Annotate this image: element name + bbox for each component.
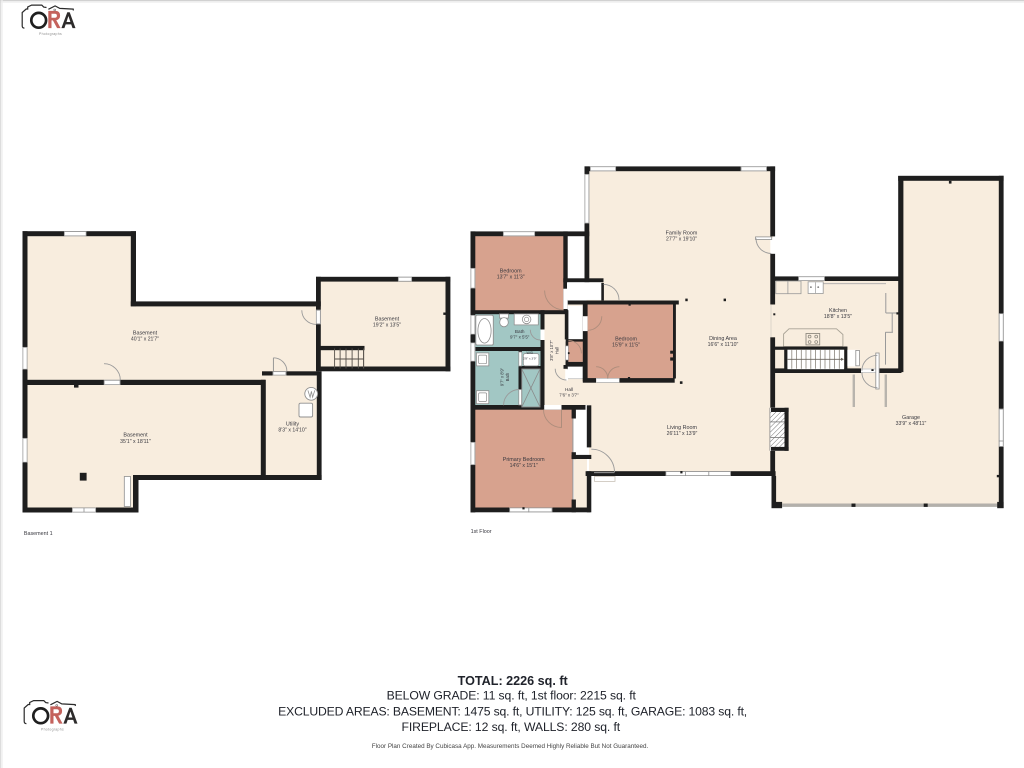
svg-text:FIREPLACE: 12 sq. ft, WALLS: 2: FIREPLACE: 12 sq. ft, WALLS: 280 sq. ft — [402, 720, 621, 734]
svg-text:Basement: Basement — [375, 316, 400, 322]
svg-text:18'8" x 13'5": 18'8" x 13'5" — [824, 314, 852, 320]
svg-text:Utility: Utility — [286, 422, 299, 428]
svg-text:Kitchen: Kitchen — [829, 308, 847, 314]
svg-text:9'7" x 8'9": 9'7" x 8'9" — [500, 367, 505, 386]
svg-text:Family Room: Family Room — [666, 231, 698, 237]
svg-text:9'7" x 5'5": 9'7" x 5'5" — [510, 334, 530, 339]
svg-text:Basement 1: Basement 1 — [24, 531, 53, 537]
svg-text:19'2" x 13'5": 19'2" x 13'5" — [373, 322, 401, 328]
svg-text:Floor Plan Created By Cubicasa: Floor Plan Created By Cubicasa App. Meas… — [372, 743, 649, 750]
svg-text:27'7" x 19'10": 27'7" x 19'10" — [666, 237, 697, 243]
svg-text:EXCLUDED AREAS: BASEMENT: 1475: EXCLUDED AREAS: BASEMENT: 1475 sq. ft, U… — [278, 704, 747, 718]
svg-text:Hall: Hall — [565, 387, 573, 392]
svg-text:Hall: Hall — [555, 347, 560, 354]
svg-text:Living Room: Living Room — [667, 425, 697, 431]
svg-text:Bath: Bath — [515, 329, 525, 334]
svg-text:Bedroom: Bedroom — [615, 337, 637, 343]
svg-text:TOTAL: 2226 sq. ft: TOTAL: 2226 sq. ft — [458, 674, 569, 688]
svg-text:BELOW GRADE: 11 sq. ft, 1st fl: BELOW GRADE: 11 sq. ft, 1st floor: 2215 … — [387, 689, 637, 703]
svg-text:33'9" x 48'11": 33'9" x 48'11" — [896, 421, 927, 427]
svg-text:13'7" x 11'3": 13'7" x 11'3" — [497, 275, 525, 281]
svg-text:8'3" x 14'10": 8'3" x 14'10" — [278, 428, 306, 434]
svg-text:Photographs: Photographs — [39, 32, 62, 36]
svg-text:Primary Bedroom: Primary Bedroom — [503, 457, 545, 463]
svg-text:40'1" x 21'7": 40'1" x 21'7" — [131, 336, 159, 342]
svg-text:Garage: Garage — [902, 415, 920, 421]
svg-text:2'8" x 3'9": 2'8" x 3'9" — [523, 357, 537, 361]
svg-text:W/D: W/D — [527, 351, 534, 355]
svg-text:35'1" x 18'11": 35'1" x 18'11" — [120, 439, 151, 445]
svg-text:15'9" x 11'5": 15'9" x 11'5" — [612, 343, 640, 349]
svg-text:Photographs: Photographs — [41, 728, 64, 732]
svg-text:7'6" x 3'7": 7'6" x 3'7" — [559, 392, 579, 397]
svg-text:3'8" x 10'7": 3'8" x 10'7" — [549, 340, 554, 361]
svg-text:14'6" x 15'1": 14'6" x 15'1" — [510, 463, 538, 469]
svg-text:16'6" x 11'10": 16'6" x 11'10" — [708, 342, 739, 348]
svg-text:26'11" x 13'9": 26'11" x 13'9" — [667, 431, 698, 437]
svg-text:Dining Area: Dining Area — [709, 336, 737, 342]
svg-text:Bath: Bath — [505, 372, 510, 381]
svg-text:Basement: Basement — [133, 330, 158, 336]
svg-text:Bedroom: Bedroom — [500, 269, 522, 275]
svg-text:1st Floor: 1st Floor — [471, 529, 492, 535]
svg-text:Basement: Basement — [123, 433, 148, 439]
